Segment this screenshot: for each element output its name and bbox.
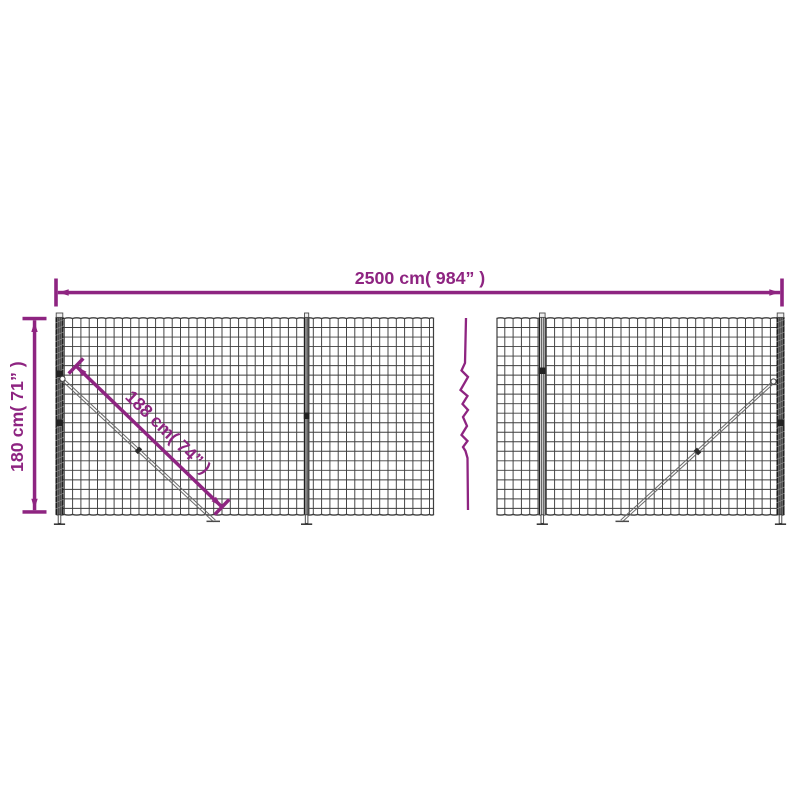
svg-text:2500 cm( 984” ): 2500 cm( 984” )	[355, 268, 486, 288]
svg-text:180 cm( 71” ): 180 cm( 71” )	[7, 361, 27, 472]
